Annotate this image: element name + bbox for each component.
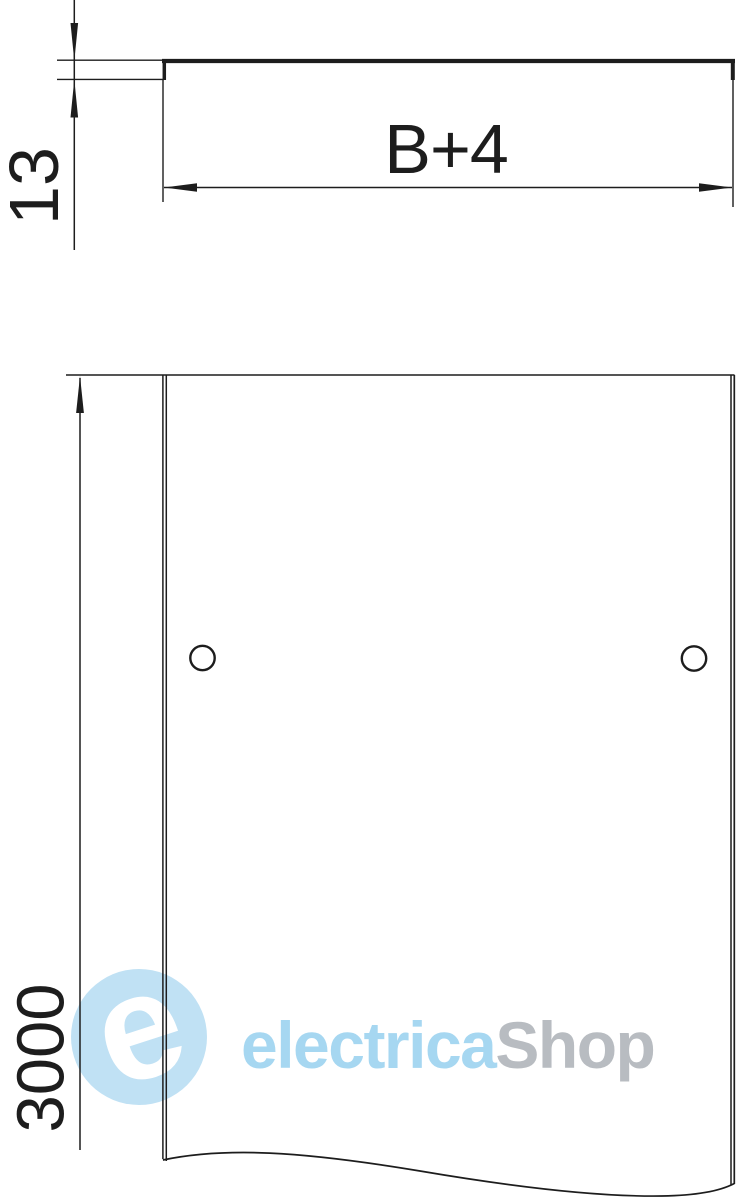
height-arrow-up-icon: [71, 80, 79, 118]
fixing-hole-left: [190, 646, 214, 670]
fixing-hole-right: [682, 646, 706, 670]
height-arrow-down-icon: [71, 23, 79, 61]
width-arrow-right-icon: [699, 183, 732, 192]
break-line: [163, 1152, 734, 1196]
profile-view: [57, 0, 735, 250]
plan-view: [66, 375, 735, 1196]
technical-drawing-page: e electricaShop: [0, 0, 736, 1200]
cover-drawing-svg: [0, 0, 736, 1200]
width-arrow-left-icon: [164, 183, 197, 192]
length-arrow-up-icon: [76, 376, 84, 413]
